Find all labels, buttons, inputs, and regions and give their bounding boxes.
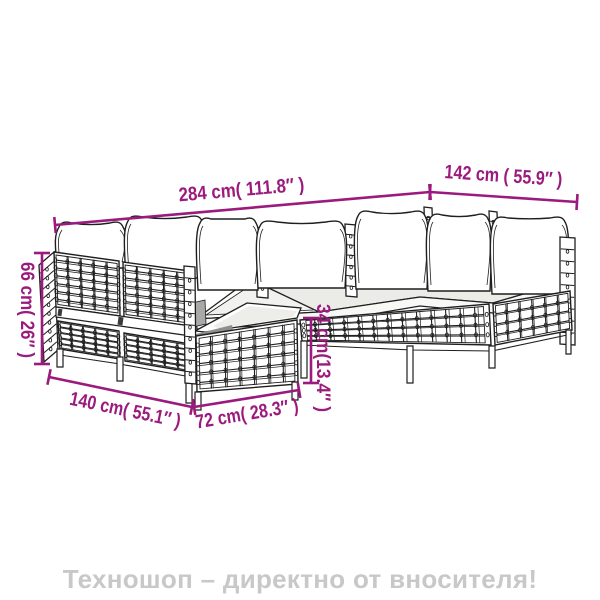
svg-text:34 cm(13.4″ ): 34 cm(13.4″ ) (312, 304, 334, 412)
svg-text:284 cm( 111.8″ ): 284 cm( 111.8″ ) (178, 174, 305, 207)
svg-text:72 cm( 28.3″ ): 72 cm( 28.3″ ) (194, 395, 300, 434)
svg-text:142 cm ( 55.9″ ): 142 cm ( 55.9″ ) (444, 161, 563, 191)
svg-text:66 cm( 26″ ): 66 cm( 26″ ) (16, 262, 38, 358)
svg-text:140 cm( 55.1″ ): 140 cm( 55.1″ ) (68, 388, 183, 433)
